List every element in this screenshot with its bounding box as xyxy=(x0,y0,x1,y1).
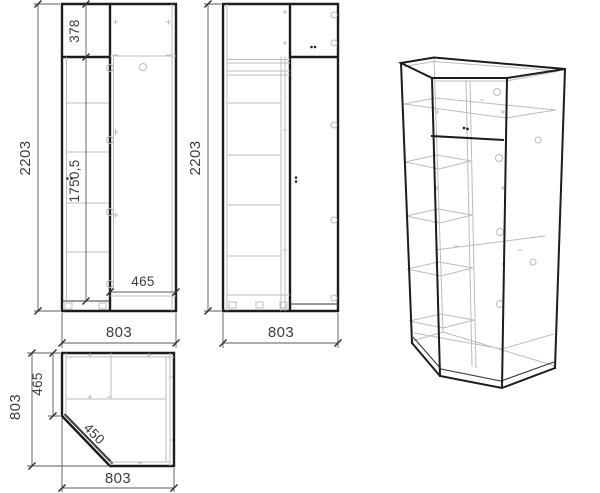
middle-top-door-handle[interactable] xyxy=(310,46,316,49)
dim-left-top-section: 378 xyxy=(67,19,82,42)
dim-middle-overall-width: 803 xyxy=(268,324,294,341)
dim-plan-overall-depth: 803 xyxy=(7,394,24,420)
dim-left-overall-width: 803 xyxy=(106,324,132,341)
isometric-view xyxy=(401,58,565,389)
iso-door-handle[interactable] xyxy=(463,127,469,131)
dim-left-lower-section: 1750,5 xyxy=(67,159,82,202)
wardrobe-drawing: 2203 378 1750,5 465 803 2203 803 803 xyxy=(0,0,600,493)
dim-plan-left-side-depth: 465 xyxy=(30,372,45,395)
middle-tall-door-handle[interactable] xyxy=(295,176,298,183)
middle-elevation-view: 2203 803 xyxy=(187,1,342,349)
middle-elevation-hinges xyxy=(331,12,337,301)
dim-plan-door-width: 450 xyxy=(81,420,108,447)
dim-plan-overall-width: 803 xyxy=(105,470,131,487)
middle-elevation-internals xyxy=(227,4,290,311)
dim-left-overall-height: 2203 xyxy=(17,141,34,176)
dim-left-right-section-width: 465 xyxy=(131,274,154,289)
plan-dim-lines xyxy=(27,353,174,492)
left-elevation-internals xyxy=(65,4,176,311)
iso-internal-structure xyxy=(404,58,559,368)
plan-outline xyxy=(62,353,174,466)
plan-internals xyxy=(66,353,174,466)
left-elevation-hinges xyxy=(107,64,147,288)
left-elevation-view: 2203 378 1750,5 465 803 xyxy=(17,1,180,349)
left-elevation-structure xyxy=(62,4,176,311)
plan-dim-ticks xyxy=(29,350,178,492)
left-elevation-dim-ticks xyxy=(35,1,180,347)
dim-middle-overall-height: 2203 xyxy=(187,141,204,176)
iso-hinges xyxy=(494,89,542,308)
drawing-canvas: 2203 378 1750,5 465 803 2203 803 803 xyxy=(0,0,600,493)
plan-view: 803 465 450 803 xyxy=(7,350,178,493)
